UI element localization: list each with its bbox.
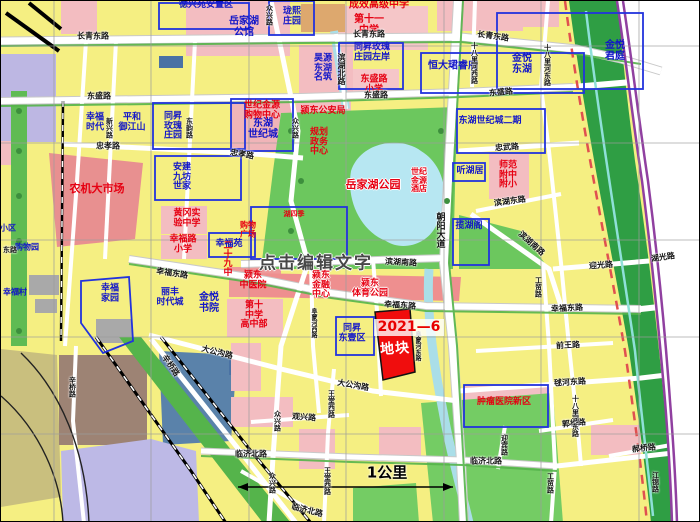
map-label: 东盛路 — [364, 92, 388, 101]
map-label: 忠武路 — [495, 143, 520, 153]
map-label: 幸福路 小学 — [169, 235, 196, 254]
map-label: 长青东路 — [77, 33, 109, 42]
map-label: 黄冈实 验中学 — [173, 209, 200, 228]
map-label: 王堂西路 — [324, 467, 331, 495]
map-label: 小区 — [0, 225, 16, 234]
map-label: 颍东 金融 中心 — [312, 271, 330, 300]
map-label: 众兴路 — [269, 473, 276, 494]
map-label: 农机大市场 — [70, 183, 125, 195]
map-label: 德兴苑安置区 — [179, 1, 233, 11]
map-label: 金悦 君庭 — [605, 41, 625, 63]
map-label: 幸福东路 — [156, 267, 189, 281]
map-label: 幸福村 — [3, 289, 27, 298]
map-label: 幸福东路 — [551, 304, 583, 314]
map-label: 世纪金源 购物中心 — [244, 101, 280, 120]
map-label: 师范 附中 附小 — [499, 161, 517, 190]
map-label: 金悦 书院 — [199, 293, 219, 315]
map-label: 十八里河东路 — [572, 395, 579, 437]
map-label: 前王路 — [556, 341, 580, 351]
map-label: 东湖世纪城二期 — [458, 117, 521, 127]
map-label: 大公沟路 — [336, 379, 369, 393]
map-label: 忠孝路 — [229, 149, 254, 162]
map-label: 同昇 东壹区 — [338, 324, 365, 343]
map-label: 同昇玫瑰 庄园左岸 — [354, 43, 390, 62]
map-label: 郭桥路 — [562, 418, 587, 429]
map-label: 迎宾路 — [501, 435, 508, 456]
map-label: 第十 中学 高中部 — [240, 301, 267, 330]
map-label: 岳家湖公园 — [346, 179, 401, 191]
map-label: 颍东 体育公园 — [352, 279, 388, 298]
map-label: 工贸路 — [535, 277, 542, 298]
map-label: 阜蒙河西路 — [310, 308, 316, 338]
map-label: 幸福 时代 — [86, 113, 104, 132]
map-label: 滨湖东路 — [494, 196, 527, 209]
scale-label: 1公里 — [367, 462, 407, 483]
map-label: 临济北路 — [470, 458, 502, 467]
map-label: 幸福苑 — [215, 240, 242, 250]
map-label: 东盛路 — [489, 88, 514, 99]
map-label: 毬河东路 — [554, 378, 587, 389]
map-label: 安建 九坊 世家 — [173, 163, 191, 192]
map-label: 东韵路 — [186, 118, 193, 139]
map-label: 新兴路 — [106, 118, 113, 139]
map-label: 丽丰 时代城 — [156, 288, 183, 307]
map-label: 颍东公安局 — [300, 107, 345, 117]
map-label: 临济北路 — [290, 503, 323, 519]
map-label: 平和 御江山 — [118, 113, 145, 132]
map-label: 同昇 玫瑰 庄园 — [164, 112, 182, 141]
map-label: 观兴路 — [292, 413, 317, 423]
map-label: 朝阳大道 — [435, 212, 444, 248]
map-label: 规划 政务 中心 — [310, 128, 328, 157]
map-label: 昊源 东湖 名筑 — [314, 54, 332, 83]
map-label: 临济北路 — [235, 451, 267, 460]
map-label: 十八里河东路 — [544, 44, 551, 86]
map-label: 辛桥路 — [69, 377, 76, 398]
map-label: 郝桥路 — [632, 443, 657, 454]
map-label: 恒大珺睿府 — [428, 62, 478, 73]
map-label: 滨湖北路 — [337, 53, 345, 85]
map-label: 肿瘤医院新区 — [477, 398, 531, 408]
map-label: 二十九中 — [222, 240, 231, 276]
map-label: 众兴路 — [292, 118, 299, 139]
watermark-text: 点击编辑文字 — [259, 249, 373, 274]
map-label: 颍东 中医院 — [239, 271, 266, 290]
map-canvas: 德兴苑安置区岳家湖 公馆珑熙 庄园同昇玫瑰 庄园左岸金悦 东湖金悦 君庭昊源 东… — [0, 0, 700, 522]
map-label: 迎光路 — [589, 261, 614, 271]
parcel-name-label: 地块 — [379, 337, 410, 359]
map-label: 十八里河西路 — [471, 42, 478, 84]
map-label: 购物园 — [15, 244, 39, 253]
map-label: 辛桥路 — [160, 354, 181, 379]
map-label: 岳家湖 公馆 — [229, 17, 259, 39]
map-label: 王堂西路 — [328, 390, 335, 418]
map-label: 幸福东路 — [384, 301, 417, 312]
map-label: 工贸路 — [547, 473, 554, 494]
map-label: 第十一 中学 — [354, 15, 384, 37]
parcel-code-badge[interactable]: 2021—6 — [374, 319, 444, 336]
map-label: 湖光路 — [651, 252, 676, 264]
map-label: 长青东路 — [477, 31, 510, 44]
map-label: 长青东路 — [353, 31, 385, 40]
map-label: 东湖 世纪城 — [248, 119, 278, 141]
map-label: 成效高级中学 — [349, 1, 409, 12]
map-label: 世纪 金源 酒店 — [411, 168, 427, 194]
map-label: 东路 — [3, 247, 17, 255]
map-label: 购物 广场 — [240, 221, 256, 238]
map-label: 滨湖南路 — [516, 230, 546, 258]
map-label: 忠孝路 — [96, 143, 120, 152]
map-label: 湖四季 — [284, 211, 305, 219]
map-label: 揽湖阁 — [455, 222, 482, 232]
map-label: 金悦 东湖 — [512, 54, 532, 76]
map-label: 听湖居 — [456, 167, 483, 177]
map-label: 众兴路 — [266, 5, 273, 26]
map-label: 珑熙 庄园 — [283, 7, 301, 26]
map-label: 大公沟路 — [200, 345, 233, 361]
map-label: 幸福 家园 — [101, 284, 119, 303]
map-label: 众兴路 — [274, 411, 281, 432]
map-label: 滨湖南路 — [385, 258, 417, 268]
map-label: 东盛路 小学 — [360, 75, 387, 94]
map-label: 东盛路 — [87, 93, 111, 102]
map-label: 江锦路 — [652, 472, 659, 493]
